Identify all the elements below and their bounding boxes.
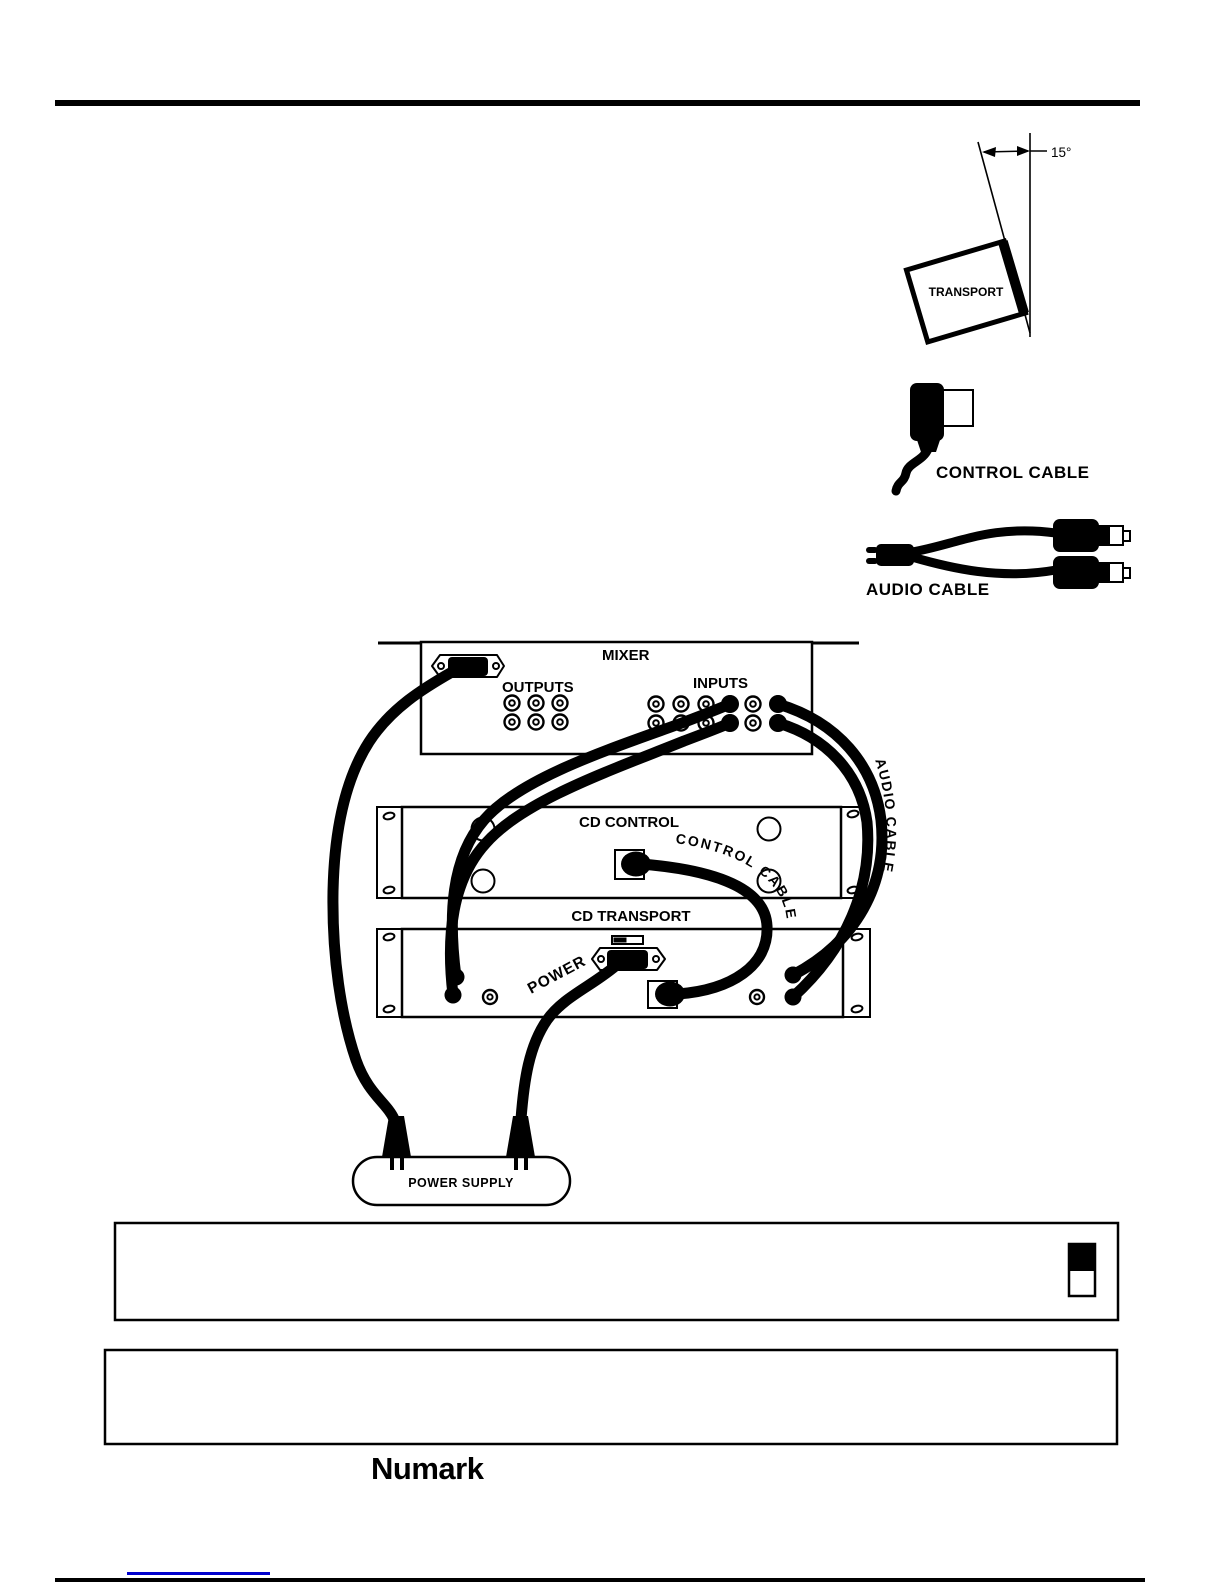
- transport-ac-inlet: [592, 948, 665, 970]
- power-supply: POWER SUPPLY: [353, 1157, 570, 1205]
- power-supply-label: POWER SUPPLY: [408, 1176, 514, 1190]
- transport-power-switch: [612, 936, 643, 944]
- tilt-angle-diagram: TRANSPORT 15°: [906, 133, 1071, 342]
- mixer-label: MIXER: [602, 647, 650, 664]
- numark-logo: Numark: [371, 1451, 485, 1486]
- angle-label: 15°: [1051, 145, 1071, 160]
- audio-cable-icon: AUDIO CABLE: [866, 519, 1130, 599]
- note-box-2: [105, 1350, 1117, 1444]
- manual-page: TRANSPORT 15° CONTROL CABLE: [0, 0, 1225, 1585]
- rca-plug-top: [1053, 519, 1130, 552]
- cd-transport-label: CD TRANSPORT: [571, 908, 690, 925]
- mixer-outputs-label: OUTPUTS: [502, 679, 574, 696]
- control-cable-plug-top: [621, 852, 651, 877]
- control-cable-icon-label: CONTROL CABLE: [936, 463, 1090, 482]
- cd-control-label: CD CONTROL: [579, 814, 679, 831]
- control-cable-plug-bottom: [655, 982, 685, 1007]
- mixer-panel: MIXER OUTPUTS INPUTS: [378, 642, 859, 754]
- footer-link-underline[interactable]: [127, 1572, 270, 1575]
- transport-box-label: TRANSPORT: [929, 285, 1004, 299]
- mixer-inputs-label: INPUTS: [693, 675, 748, 692]
- rca-plug-bottom: [1053, 556, 1130, 589]
- control-cable-icon: CONTROL CABLE: [896, 383, 1090, 491]
- top-rule: [55, 100, 1140, 106]
- note-box-1: [115, 1223, 1118, 1320]
- bottom-rule: [55, 1578, 1145, 1582]
- audio-cable-icon-label: AUDIO CABLE: [866, 580, 990, 599]
